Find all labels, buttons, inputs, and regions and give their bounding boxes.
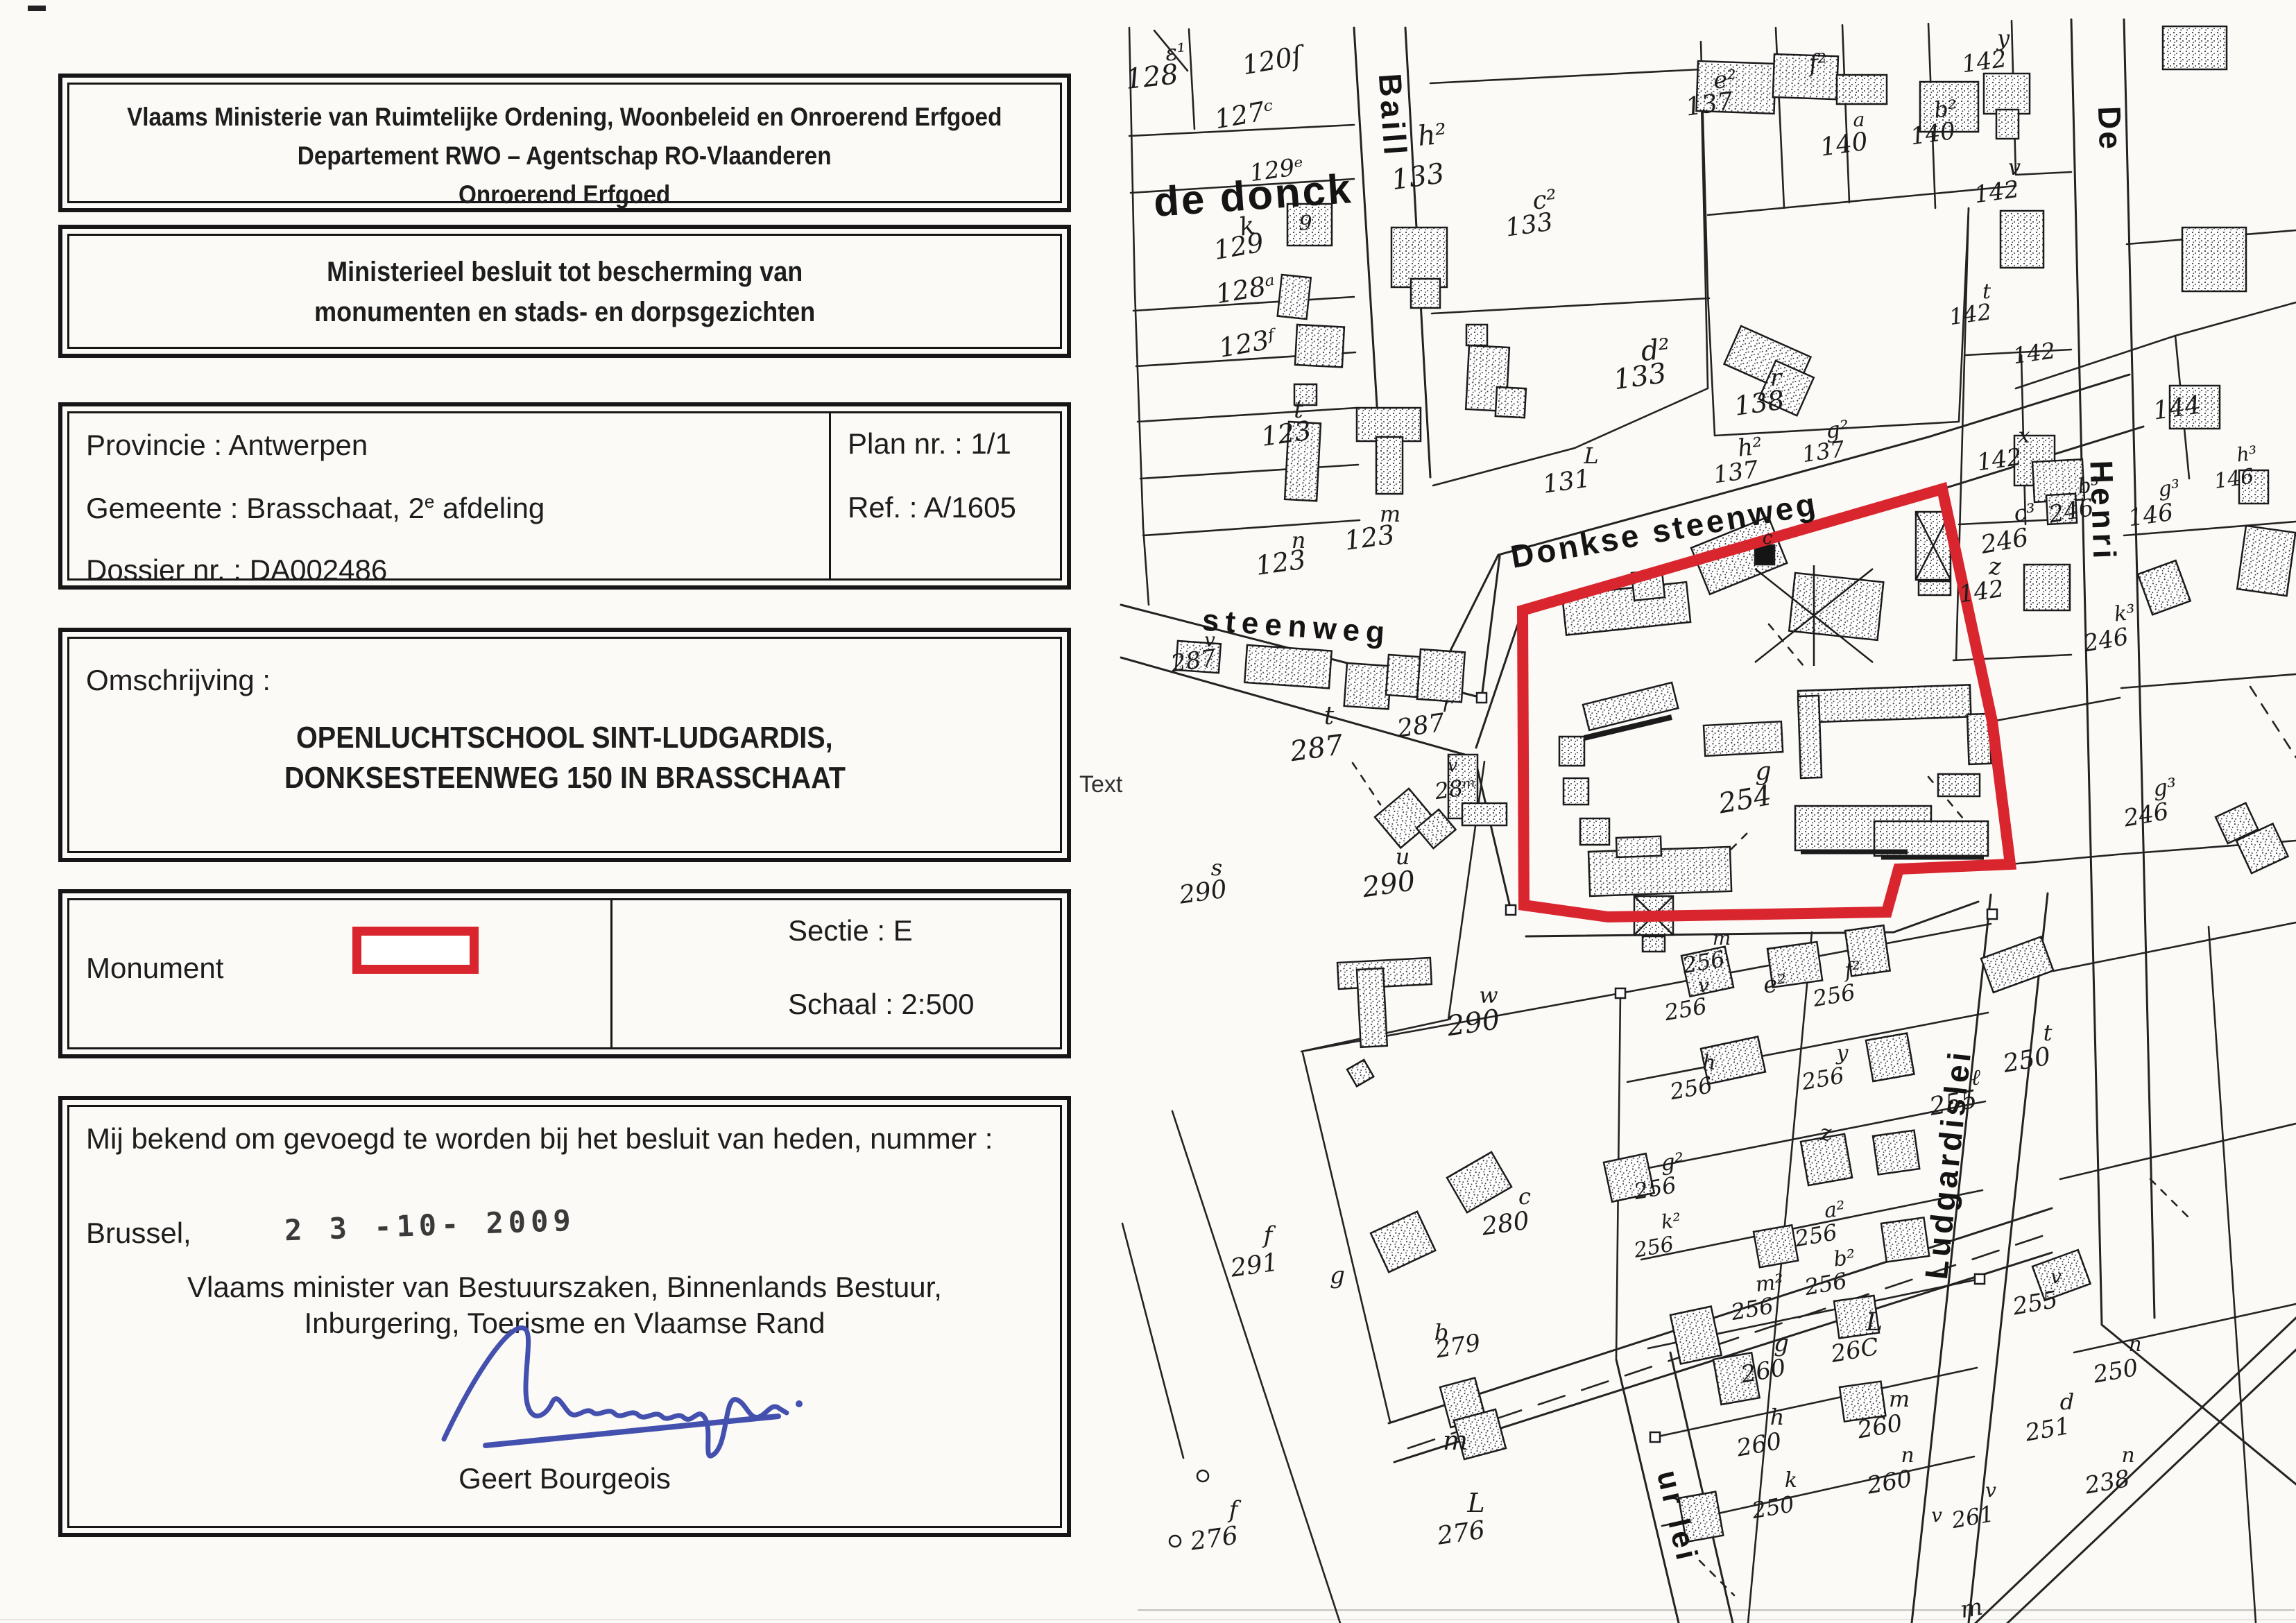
- description-label: Omschrijving :: [86, 664, 271, 697]
- parcel-label: 128: [1124, 58, 1180, 96]
- parcel-label: 246: [2121, 798, 2171, 833]
- parcel-label: 260: [1734, 1427, 1784, 1463]
- parcel-label: 120ſ: [1240, 40, 1308, 80]
- parcel-label: ℓ: [1971, 1064, 1980, 1090]
- parcel-label: v: [1985, 1479, 1996, 1502]
- parcel-label: m²: [1754, 1270, 1785, 1297]
- parcel-label: 142: [1973, 175, 2021, 209]
- parcel-label: 123: [1342, 519, 1396, 556]
- parcel-label: 260: [1865, 1465, 1914, 1500]
- title-box: Ministerieel besluit tot bescherming van…: [58, 225, 1071, 358]
- parcel-label: k: [1237, 212, 1258, 242]
- parcel-label: 256: [1810, 979, 1858, 1012]
- closing-line: Mij bekend om gevoegd te worden bij het …: [86, 1122, 993, 1156]
- street-label: Donkse steenweg: [1508, 486, 1821, 575]
- parcel-label: d: [2060, 1389, 2074, 1415]
- parcel-label: d²: [1640, 333, 1672, 368]
- parcel-lines: [1121, 19, 2296, 1623]
- parcel-label: 251: [2023, 1412, 2073, 1448]
- parcel-label: n: [1292, 527, 1306, 553]
- parcel-label: h²: [1736, 432, 1764, 462]
- parcel-label: k³: [2113, 601, 2136, 627]
- parcel-label: n: [1901, 1443, 1914, 1468]
- decree-title-line-1: Ministerieel besluit tot bescherming van: [327, 257, 803, 288]
- street-label: Henri: [2083, 460, 2123, 563]
- parcel-label: 256: [1792, 1219, 1840, 1252]
- parcel-label: k: [1785, 1468, 1797, 1493]
- header-box: Vlaams Ministerie van Ruimtelijke Ordeni…: [58, 74, 1071, 212]
- parcel-label: 142: [1957, 575, 2006, 609]
- parcel-label: b³: [2077, 473, 2101, 499]
- parcel-label: 290: [1360, 865, 1417, 904]
- parcel-label: 260: [1855, 1409, 1905, 1445]
- province-field: Provincie : Antwerpen: [86, 429, 368, 462]
- street-label: Baill: [1372, 72, 1414, 159]
- dossier-field: Dossier nr. : DA002486: [86, 553, 387, 587]
- parcel-label: e²: [1762, 969, 1788, 999]
- parcel-label: 290: [1177, 875, 1229, 910]
- ministry-line-3: Onroerend Erfgoed: [459, 180, 670, 209]
- parcel-label: 137: [1684, 87, 1736, 122]
- scanned-decree-page: { "page": {"ink": "#1c1c1c", "accent_red…: [0, 0, 2296, 1623]
- ministry-line-2: Departement RWO – Agentschap RO-Vlaander…: [298, 141, 832, 171]
- parcel-label: h²: [1416, 118, 1448, 153]
- parcel-label: k²: [1660, 1209, 1681, 1234]
- parcel-label: s: [1211, 855, 1222, 881]
- minister-title-line-2: Inburgering, Toerisme en Vlaamse Rand: [69, 1307, 1060, 1340]
- parcel-label: m: [1713, 927, 1731, 950]
- parcel-label: r: [1442, 693, 1453, 717]
- parcel-label: 131: [1541, 465, 1593, 499]
- street-label: de donck: [1152, 165, 1354, 225]
- parcel-label: 146: [2213, 464, 2256, 494]
- parcel-label: 123: [1253, 544, 1308, 581]
- parcel-label: 137: [1712, 456, 1760, 490]
- decree-title-line-2: monumenten en stads- en dorpsgezichten: [314, 297, 815, 328]
- map-buildings: [1176, 26, 2295, 1542]
- signer-name: Geert Bourgeois: [69, 1462, 1060, 1495]
- street-label: ur lei: [1650, 1467, 1704, 1566]
- parcel-label: 238: [2082, 1465, 2132, 1500]
- parcel-label: v: [1698, 974, 1709, 997]
- ministry-line-1: Vlaams Ministerie van Ruimtelijke Ordeni…: [127, 103, 1002, 132]
- street-label: steenweg: [1201, 603, 1391, 651]
- parcel-label: v: [2008, 154, 2021, 180]
- parcel-label: 256: [1631, 1232, 1675, 1263]
- parcel-label: 291: [1228, 1248, 1280, 1283]
- parcel-label: w: [1479, 982, 1498, 1008]
- parcel-label: n: [2121, 1443, 2134, 1468]
- parcel-label: n: [2128, 1332, 2141, 1357]
- parcel-label: 280: [1480, 1207, 1532, 1242]
- parcel-label: h³: [2236, 442, 2259, 467]
- parcel-label: 246: [2046, 494, 2096, 529]
- parcel-label: 250: [2091, 1354, 2141, 1389]
- parcel-label: L: [1583, 443, 1598, 469]
- parcel-label: m: [1380, 501, 1400, 527]
- parcel-label: 254: [1715, 780, 1774, 821]
- date-stamp: 2 3 -10- 2009: [284, 1203, 576, 1248]
- parcel-label: b: [1434, 1319, 1448, 1346]
- sectie-field: Sectie : E: [788, 914, 913, 947]
- protected-area-outline: [1523, 489, 2010, 917]
- parcel-label: f: [1227, 1496, 1242, 1524]
- parcel-label: t: [2044, 1020, 2053, 1046]
- parcel-label: 137: [1801, 436, 1847, 467]
- parcel-label: L: [1865, 1308, 1883, 1337]
- parcel-label: g³: [2157, 476, 2182, 502]
- parcel-label: 255: [1927, 1085, 1980, 1122]
- parcel-label: 256: [1680, 945, 1727, 979]
- parcel-label: 290: [1444, 1004, 1502, 1042]
- parcel-label: 260: [1738, 1354, 1788, 1389]
- parcel-label: 256: [1802, 1267, 1849, 1300]
- parcel-label: b²: [1933, 94, 1958, 123]
- street-label: De: [2091, 105, 2129, 152]
- plan-number-field: Plan nr. : 1/1: [848, 427, 1011, 461]
- parcel-label: v: [1204, 628, 1215, 651]
- signature-box: Mij bekend om gevoegd te worden bij het …: [58, 1096, 1071, 1537]
- reference-field: Ref. : A/1605: [848, 491, 1016, 524]
- parcel-label: 246: [1978, 524, 2031, 560]
- parcel-label: m: [1889, 1386, 1910, 1412]
- parcel-label: 133: [1611, 357, 1668, 396]
- parcel-label: z: [1988, 553, 2002, 581]
- parcel-label: y: [1835, 1041, 1849, 1065]
- parcel-label: 250: [1749, 1491, 1797, 1524]
- municipality-field: Gemeente : Brasschaat, 2e afdeling: [86, 491, 545, 525]
- street-label: Ludgardislei: [1918, 1047, 1978, 1281]
- parcel-label: 256: [1662, 993, 1709, 1026]
- schaal-field: Schaal : 2:500: [788, 988, 975, 1021]
- legend-monument-label: Monument: [86, 952, 223, 985]
- parcel-label: g²: [1659, 1147, 1685, 1176]
- street-labels: de donckBaillDonkse steenwegsteenwegDeHe…: [1152, 72, 2129, 1566]
- parcel-label: 256: [1668, 1072, 1715, 1105]
- parcel-label: ε¹: [1164, 38, 1188, 67]
- parcel-label: 142: [1976, 443, 2024, 477]
- parcel-label: v: [2050, 1265, 2062, 1288]
- parcel-label: f²: [1842, 957, 1862, 983]
- parcel-label: t: [1324, 702, 1335, 730]
- parcel-label: 287: [1395, 709, 1447, 744]
- parcel-label: e²: [1712, 65, 1738, 94]
- description-line-2: DONKSESTEENWEG 150 IN BRASSCHAAT: [284, 761, 846, 796]
- parcel-label: h: [1702, 1051, 1715, 1075]
- parcel-label: h: [1770, 1404, 1785, 1430]
- parcel-label: 123: [1259, 415, 1313, 452]
- parcel-label: a²: [1823, 1197, 1846, 1223]
- parcel-labels-layer: ε¹128120ſ127ᶜ129ᵉk1299128ᵃ123ᶠt123n123m1…: [1124, 25, 2258, 1623]
- parcel-label: 140: [1819, 128, 1870, 162]
- parcel-label: 250: [2001, 1042, 2053, 1079]
- parcel-label: 142: [1948, 298, 1994, 330]
- monument-symbol: [352, 927, 479, 974]
- parcel-label: 133: [1504, 208, 1555, 243]
- parcel-label: f²: [1806, 49, 1828, 78]
- parcel-label: 138: [1732, 384, 1786, 422]
- parcel-label: x: [2019, 424, 2030, 448]
- parcel-label: g²: [1824, 415, 1850, 443]
- description-line-1: OPENLUCHTSCHOOL SINT-LUDGARDIS,: [296, 721, 833, 755]
- parcel-label: 142: [1960, 45, 2009, 79]
- parcel-label: v: [1931, 1504, 1942, 1527]
- parcel-label: 256: [1631, 1171, 1679, 1205]
- legend-box: Monument Sectie : E Schaal : 2:500: [58, 889, 1071, 1058]
- parcel-label: f: [1262, 1221, 1276, 1249]
- parcel-label: c: [1518, 1183, 1531, 1210]
- parcel-label: g³: [2152, 773, 2177, 801]
- parcel-label: c: [1763, 528, 1773, 549]
- parcel-label: y: [1996, 25, 2010, 51]
- parcel-label: 123ᶠ: [1217, 323, 1280, 363]
- parcel-label: r: [1770, 364, 1783, 392]
- parcel-label: m: [1958, 1593, 1985, 1623]
- parcel-label: 128ᵃ: [1213, 269, 1278, 309]
- parcel-label: 133: [1389, 157, 1446, 196]
- parcel-label: 276: [1188, 1522, 1240, 1556]
- parcel-label: 129: [1211, 227, 1266, 266]
- parcel-label: 142: [2012, 337, 2057, 369]
- parcel-label: c²: [1531, 184, 1558, 215]
- parcel-label: L: [1466, 1488, 1484, 1518]
- parcel-label: u: [1396, 843, 1410, 870]
- place-label: Brussel,: [86, 1217, 191, 1250]
- parcel-label: 279: [1433, 1329, 1483, 1364]
- parcel-label: 129ᵉ: [1248, 153, 1305, 187]
- parcel-label: t: [1982, 280, 1991, 304]
- parcel-label: b²: [1833, 1246, 1857, 1272]
- description-box: Omschrijving : OPENLUCHTSCHOOL SINT-LUDG…: [58, 628, 1071, 862]
- parcel-label: 246: [2081, 623, 2131, 658]
- parcel-label: 9: [1299, 212, 1312, 236]
- parcel-label: 255: [2010, 1286, 2060, 1321]
- parcel-label: g: [1774, 1330, 1789, 1357]
- parcel-label: 26C: [1828, 1332, 1881, 1368]
- parcel-label: g: [1330, 1262, 1345, 1289]
- parcel-label: a: [1853, 108, 1865, 131]
- parcel-label: 146: [2127, 499, 2175, 533]
- parcel-label: m: [1443, 1425, 1468, 1456]
- parcel-label: 256: [1799, 1062, 1847, 1095]
- parcel-label: v: [1448, 755, 1458, 776]
- parcel-label: z: [1819, 1119, 1833, 1146]
- parcel-label: 261: [1949, 1500, 1996, 1534]
- details-box: Provincie : Antwerpen Gemeente : Brassch…: [58, 402, 1071, 590]
- minister-title-line-1: Vlaams minister van Bestuurszaken, Binne…: [69, 1271, 1060, 1304]
- parcel-label: 287: [1287, 729, 1346, 768]
- parcel-label: 144: [2152, 391, 2203, 426]
- survey-markers: [1170, 693, 1997, 1547]
- parcel-label: 28ᵐ: [1432, 773, 1478, 805]
- parcel-label: 276: [1435, 1516, 1487, 1551]
- parcel-label: g: [1755, 757, 1771, 786]
- parcel-label: 287: [1169, 644, 1218, 678]
- parcel-label: 140: [1909, 117, 1957, 151]
- parcel-label: c³: [2013, 499, 2037, 527]
- parcel-label: t: [1294, 396, 1303, 424]
- parcel-label: 127ᶜ: [1213, 94, 1276, 135]
- parcel-label: 256: [1729, 1292, 1776, 1325]
- gutter-annotation: Text: [1079, 771, 1122, 798]
